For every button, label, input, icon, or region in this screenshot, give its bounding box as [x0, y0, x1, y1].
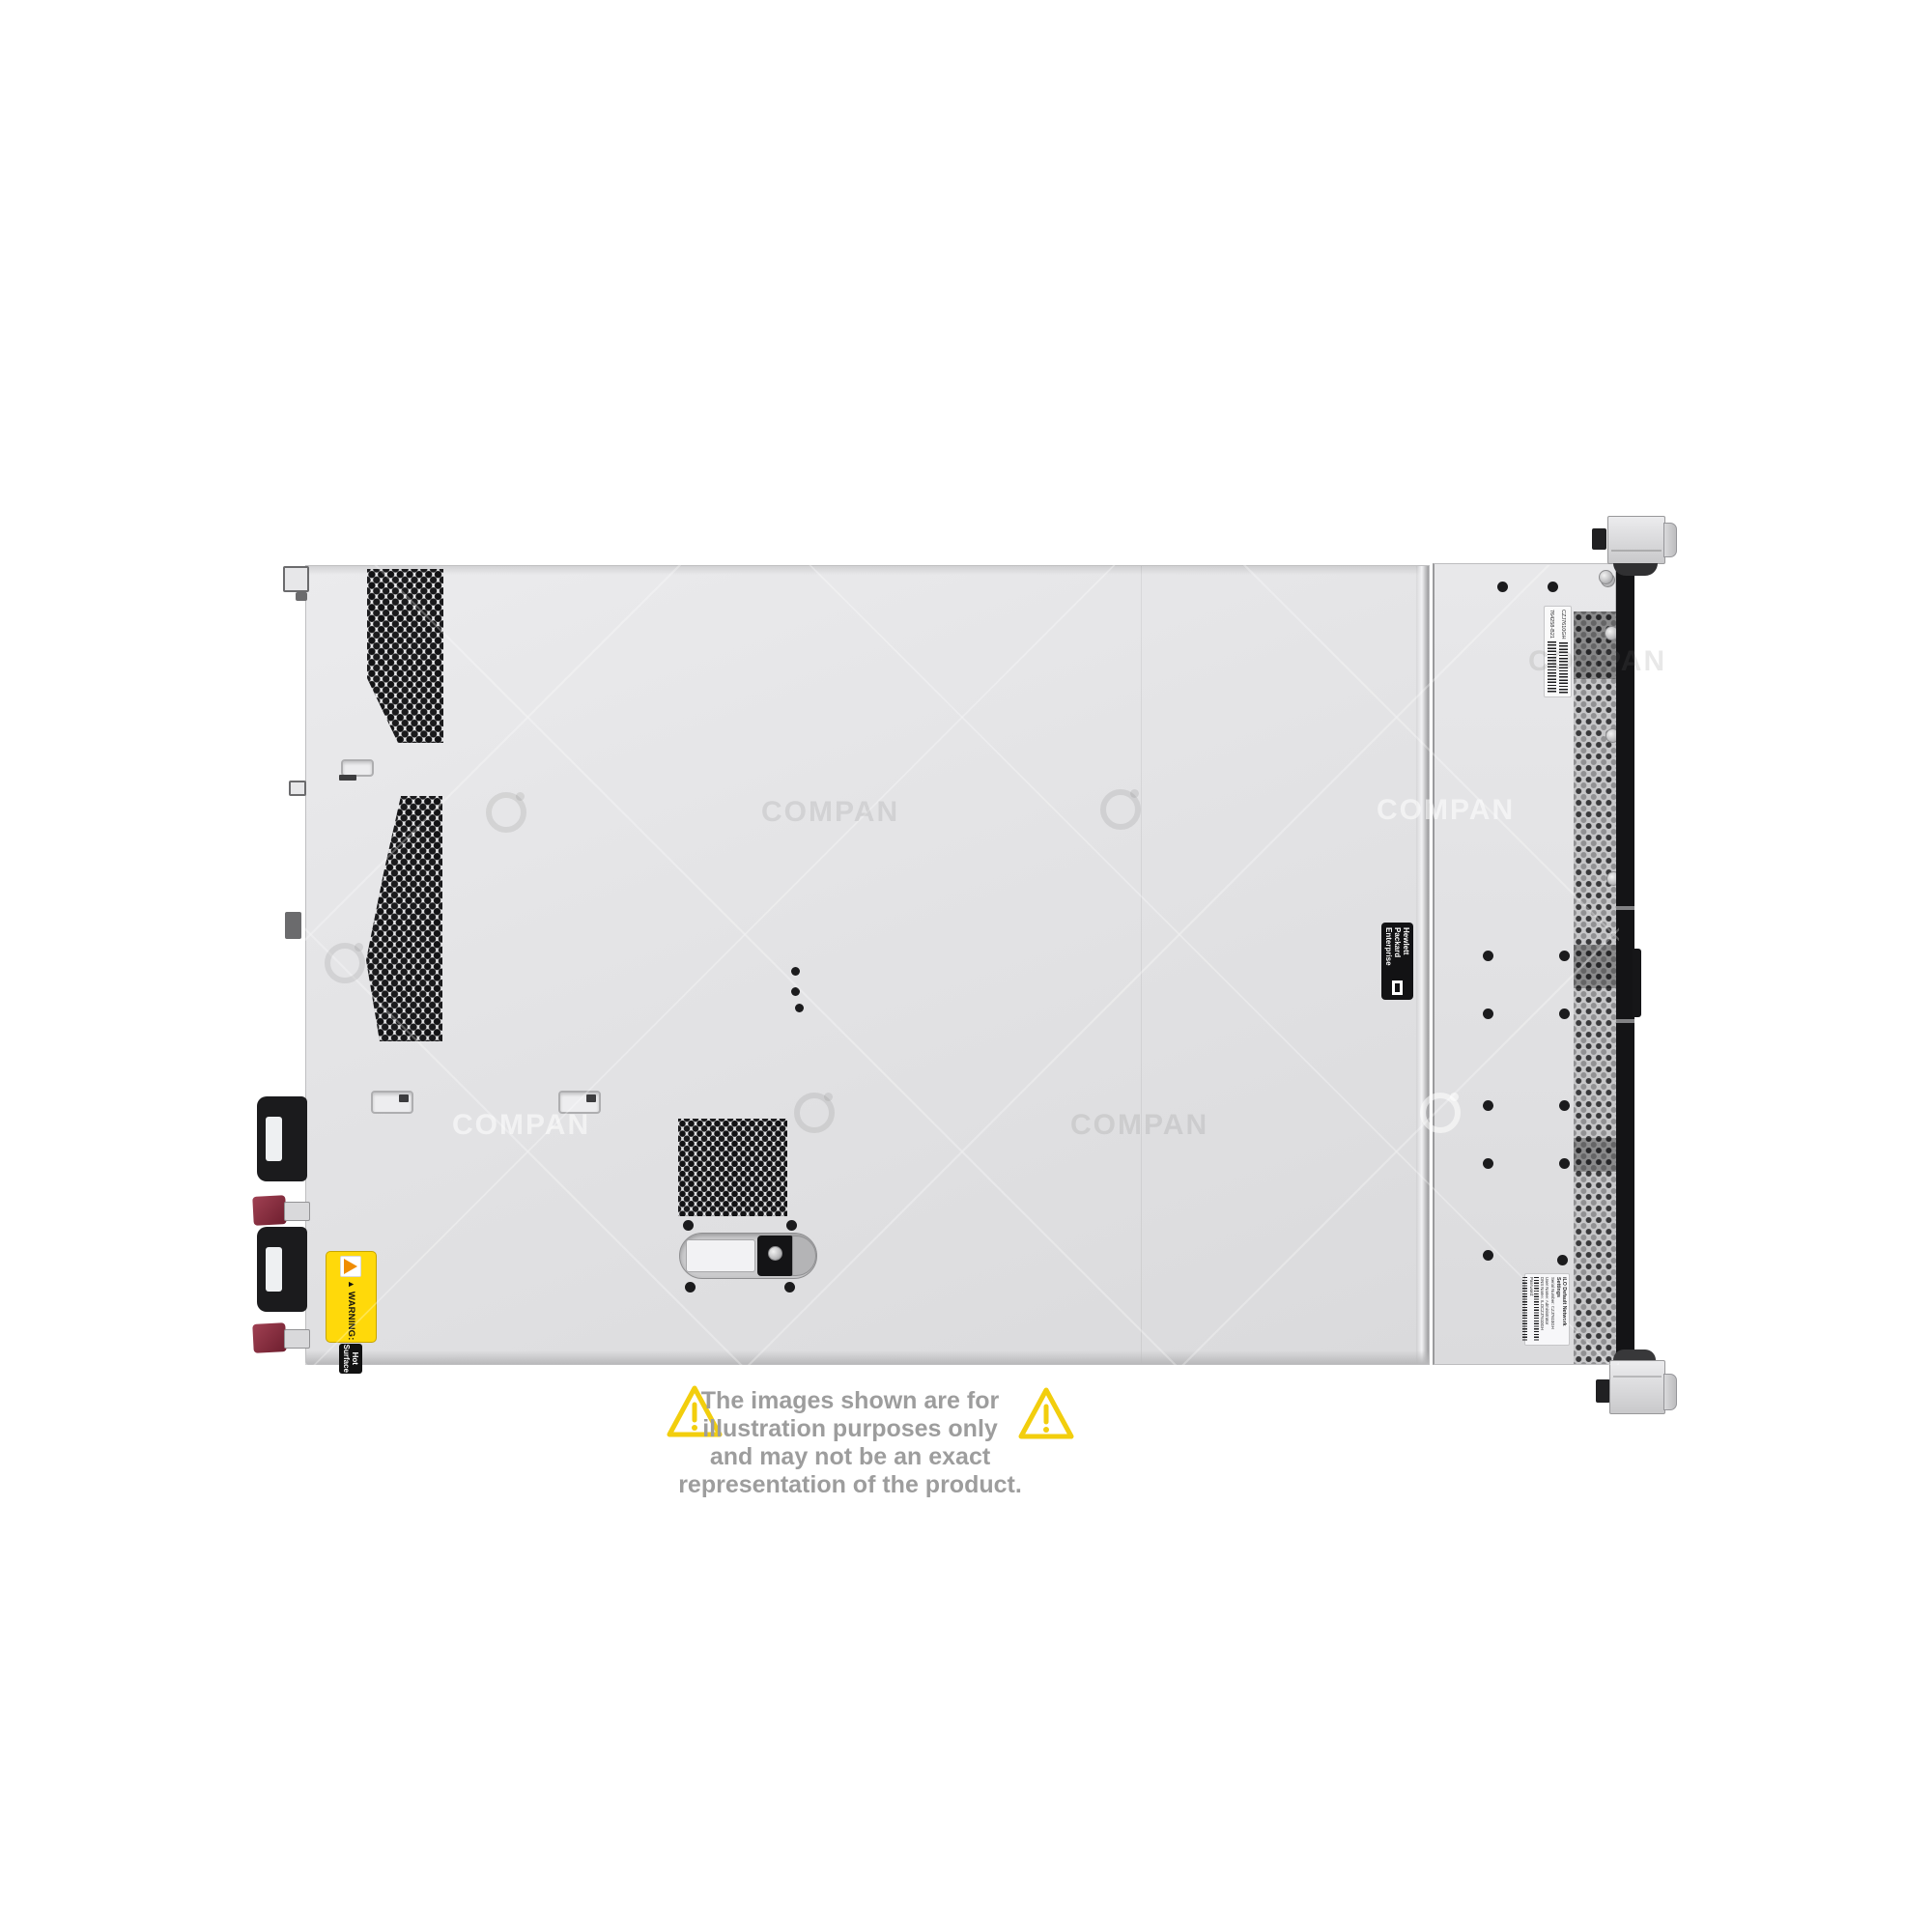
warning-title: WARNING:: [346, 1292, 356, 1341]
latch-screw: [768, 1246, 782, 1261]
ilo-barcode: [1534, 1277, 1539, 1342]
fan-grille: [678, 1119, 787, 1216]
cover-latch-cutout-upper: [341, 759, 374, 777]
psu-handle-1[interactable]: [257, 1096, 307, 1181]
ilo-barcode: [1522, 1277, 1527, 1342]
psu-handle-opening: [266, 1117, 282, 1161]
hpe-line1: Hewlett Packard: [1393, 927, 1410, 977]
product-image-scene: Hewlett Packard Enterprise ▲ WARNING: Ho…: [0, 0, 1932, 1932]
hpe-line2: Enterprise: [1384, 927, 1393, 977]
serial-barcode-label: CZJ7610GH 764258-B21: [1544, 606, 1572, 697]
perforation-shade: [1574, 611, 1617, 679]
front-screw: [1559, 1158, 1570, 1169]
cover-cutout-right: [558, 1091, 601, 1114]
barcode-row: 764258-B21: [1547, 610, 1557, 694]
disclaimer-line2: and may not be an exact representation o…: [676, 1443, 1024, 1499]
warning-triangle-icon: [1016, 1383, 1076, 1445]
disclaimer-line1: The images shown are for illustration pu…: [676, 1387, 1024, 1443]
barcode: [1548, 641, 1556, 694]
hpe-logo-icon: [1392, 980, 1403, 995]
cover-release-latch[interactable]: [679, 1233, 817, 1279]
rear-edge-clip-mid: [289, 781, 306, 796]
warning-triangle-icon: [345, 1259, 358, 1274]
cover-cutout-left: [371, 1091, 413, 1114]
front-screw: [1557, 1255, 1568, 1265]
cutout-tab: [399, 1094, 409, 1102]
front-screw: [1559, 951, 1570, 961]
hpe-brand-label: Hewlett Packard Enterprise: [1381, 923, 1413, 1000]
ear-seam: [1613, 1376, 1662, 1378]
bezel-seam: [1616, 906, 1634, 910]
screw-hole: [784, 1282, 795, 1293]
front-perforation-strip: [1574, 611, 1617, 1364]
ilo-dnsname: DNS Name: ILOCZJ7610GH: [1540, 1277, 1545, 1342]
ear-shadow: [1613, 1350, 1656, 1360]
hot-surface-warning-label: ▲ WARNING: Hot Surface: [326, 1251, 377, 1343]
barcode-row: CZJ7610GH: [1558, 610, 1569, 694]
front-screw: [1548, 582, 1558, 592]
cover-bottom-hem: [306, 1350, 1429, 1364]
psu-handle-2[interactable]: [257, 1227, 307, 1312]
front-screw: [1559, 1100, 1570, 1111]
front-screw: [1483, 951, 1493, 961]
warning-subtitle: Hot Surface: [340, 1344, 363, 1374]
front-screw: [1483, 1009, 1493, 1019]
front-screw: [1497, 582, 1508, 592]
ear-latch-nub: [1596, 1379, 1610, 1403]
psu-connector-1: [284, 1202, 310, 1221]
bezel-seam: [1616, 1019, 1634, 1023]
serial-number-text: CZJ7610GH: [1561, 610, 1567, 639]
ear-seam: [1611, 550, 1662, 552]
psu-release-tab-1[interactable]: [252, 1195, 287, 1226]
vent-perforation-lower: [366, 796, 442, 1041]
front-screw: [1483, 1250, 1493, 1261]
part-number-text: 764258-B21: [1549, 610, 1555, 639]
server-top-cover: [305, 565, 1430, 1365]
latch-window: [686, 1239, 755, 1272]
barcode: [1559, 642, 1568, 694]
cover-right-fold: [1416, 566, 1429, 1364]
ear-body: [1607, 516, 1665, 564]
ear-screw[interactable]: [1599, 570, 1613, 584]
ilo-settings-label: iLO Default Network Settings Serial Numb…: [1524, 1273, 1570, 1346]
cutout-tab: [586, 1094, 596, 1102]
asset-tag-pull-tab[interactable]: [1633, 949, 1641, 1017]
ilo-username: User Name: Administrator: [1545, 1277, 1549, 1342]
vent-hole: [791, 987, 800, 996]
perforation-shade: [1574, 1138, 1617, 1172]
warning-triangle-glyph-icon: ▲: [347, 1280, 355, 1289]
screw-hole: [683, 1220, 694, 1231]
psu-release-tab-2[interactable]: [252, 1322, 287, 1353]
rear-edge-clip-lower: [285, 912, 301, 939]
ear-cap: [1663, 523, 1677, 557]
latch-cap: [792, 1236, 816, 1276]
cover-seam: [1141, 566, 1142, 1364]
rear-edge-nub: [296, 592, 307, 601]
rear-edge-clip-top: [283, 566, 309, 592]
ear-latch-nub: [1592, 528, 1606, 550]
ear-body: [1609, 1360, 1665, 1414]
ear-cap: [1663, 1374, 1677, 1410]
ear-shadow: [1613, 563, 1658, 576]
cover-top-hem: [306, 566, 1429, 575]
psu-handle-opening: [266, 1247, 282, 1292]
vent-perforation-upper: [367, 569, 443, 743]
vent-hole: [795, 1004, 804, 1012]
vent-hole: [791, 967, 800, 976]
server-front-section: [1433, 563, 1616, 1365]
hpe-label-text: Hewlett Packard Enterprise: [1384, 927, 1411, 977]
perforation-shade: [1574, 945, 1617, 988]
ilo-password: Password:: [1528, 1277, 1533, 1342]
psu-connector-2: [284, 1329, 310, 1349]
front-screw: [1483, 1158, 1493, 1169]
front-screw: [1559, 1009, 1570, 1019]
screw-hole: [786, 1220, 797, 1231]
cutout-tab: [339, 775, 356, 781]
disclaimer-warning-right: [1016, 1383, 1076, 1445]
ilo-title: iLO Default Network Settings: [1555, 1277, 1567, 1342]
hot-surface-icon: [341, 1256, 362, 1277]
front-screw: [1483, 1100, 1493, 1111]
ilo-serial: Serial Number: CZJ7610GH: [1549, 1277, 1554, 1342]
disclaimer-text: The images shown are for illustration pu…: [676, 1387, 1024, 1499]
screw-hole: [685, 1282, 696, 1293]
